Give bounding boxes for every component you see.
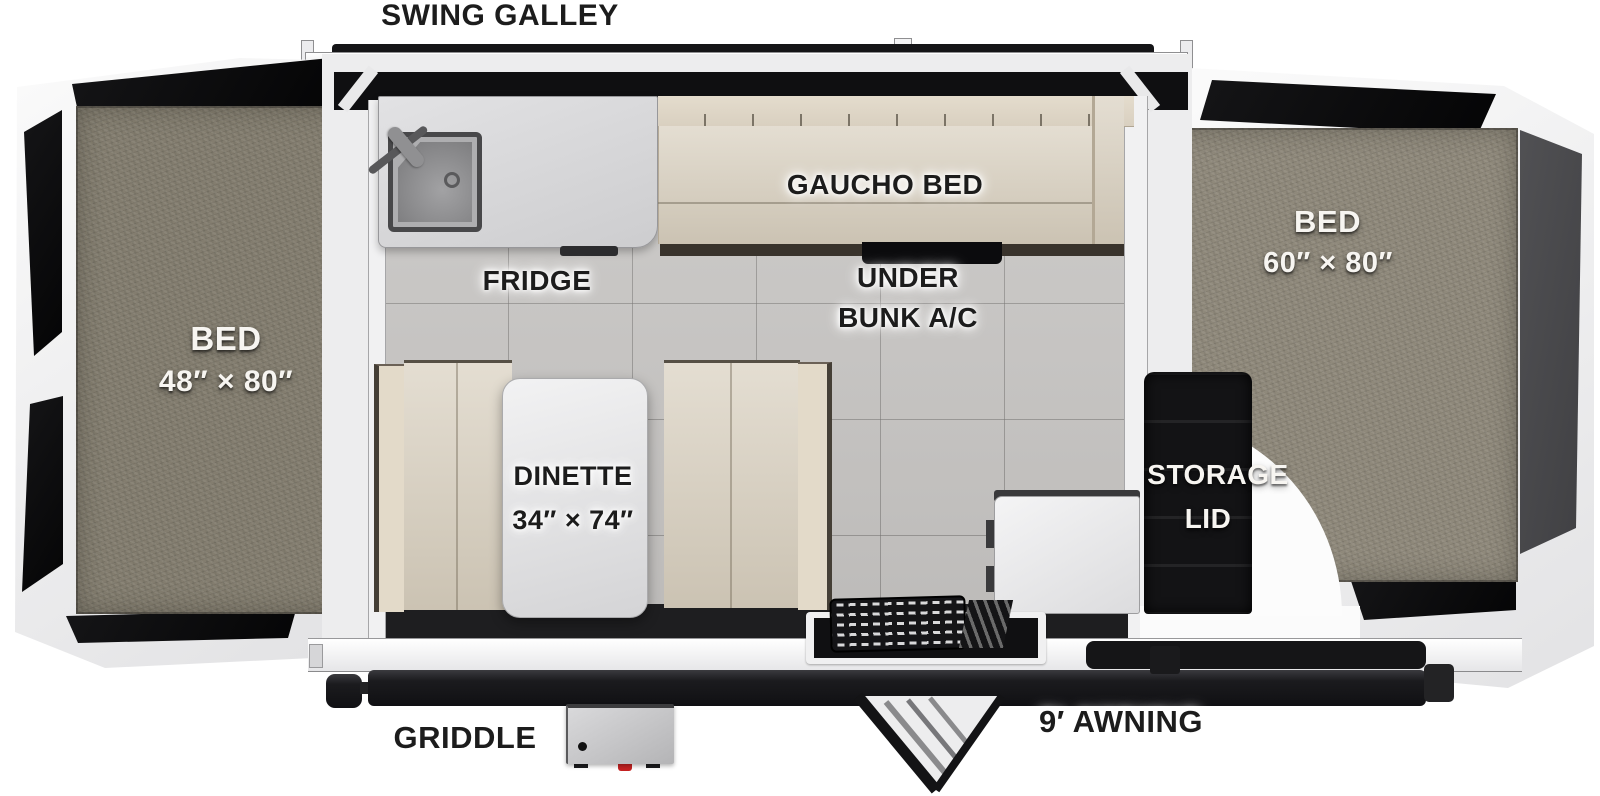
- dinette-table: [502, 378, 648, 618]
- fridge-vent: [560, 246, 618, 256]
- left-bed-label: BED: [106, 322, 346, 357]
- storage-lid-label-line1: STORAGE: [1116, 460, 1320, 489]
- storage-lid-label-line2: LID: [1126, 504, 1290, 533]
- fridge-label: FRIDGE: [452, 266, 622, 295]
- under-bunk-ac-label-line1: UNDER: [818, 263, 998, 292]
- bottom-wall-notch: [309, 644, 323, 668]
- dinette-label: DINETTE: [492, 462, 654, 490]
- awning-arm: [850, 692, 1010, 796]
- dinette-size-label: 34″ × 74″: [488, 506, 658, 534]
- gaucho-bed-armrest: [1092, 96, 1124, 244]
- right-bed-size-label: 60″ × 80″: [1216, 248, 1440, 278]
- rail-bracket-mid: [1150, 646, 1180, 674]
- gaucho-bed-seam-ticks: [658, 114, 1134, 126]
- gaucho-bed-seam: [658, 202, 1094, 204]
- entry-step-grate: [829, 595, 966, 653]
- under-bunk-ac-unit: [862, 242, 1002, 264]
- storage-lid: [1144, 372, 1252, 614]
- bumper-right-cap: [1424, 664, 1454, 702]
- bottom-wall-window-strip: [1086, 641, 1426, 669]
- griddle: [566, 704, 674, 764]
- awning-label: 9′ AWNING: [1008, 706, 1234, 739]
- swing-galley-label: SWING GALLEY: [318, 0, 682, 32]
- gaucho-bed-label: GAUCHO BED: [735, 170, 1035, 199]
- left-bed-size-label: 48″ × 80″: [96, 366, 356, 398]
- under-bunk-ac-label-line2: BUNK A/C: [795, 303, 1021, 332]
- dinette-bench-right-backrest: [798, 362, 832, 610]
- floorplan-canvas: SWING GALLEY BED 48″ × 80″ GAUCHO BED FR…: [0, 0, 1600, 796]
- dinette-bench-right: [664, 360, 800, 608]
- griddle-label: GRIDDLE: [350, 722, 580, 755]
- cabinet: [994, 496, 1140, 614]
- right-bed-label: BED: [1240, 206, 1415, 239]
- sink-drain: [444, 172, 460, 188]
- dinette-bench-left-backrest: [374, 364, 404, 612]
- bumper-left-cap: [326, 674, 362, 708]
